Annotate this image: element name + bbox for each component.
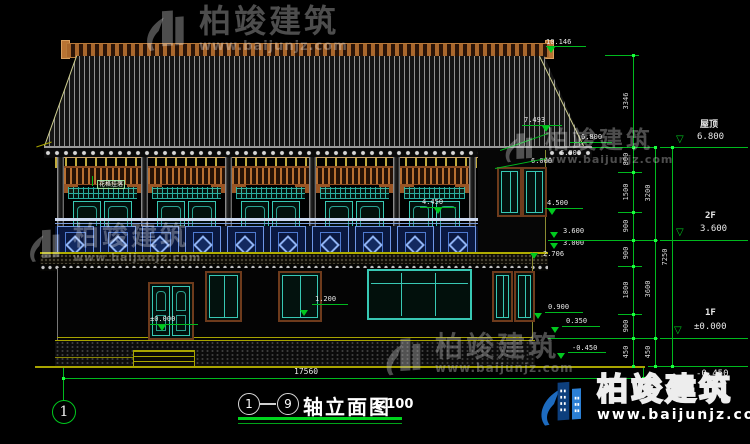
transom-bar	[371, 283, 468, 284]
marker-stem	[570, 142, 612, 143]
marker-triangle	[548, 209, 556, 215]
elevation-marker: 4.500	[547, 199, 568, 207]
elevation-marker: 10.146	[546, 38, 571, 46]
level-line	[660, 240, 748, 241]
dim-label: 17560	[294, 368, 318, 376]
detail-label: 花格挂落	[97, 180, 125, 189]
elevation-marker: 3.600	[563, 227, 584, 235]
dim-label: 450	[643, 330, 653, 374]
carved-bracket-band	[316, 166, 393, 185]
main-roof-tiles	[44, 56, 584, 146]
title-axis-start-bubble: 1	[238, 393, 260, 415]
level-triangle: ▽	[674, 326, 682, 336]
plinth-line	[55, 357, 135, 358]
cad-elevation-drawing: 花格挂落 10.146 7.493	[0, 0, 750, 444]
dim-tick	[654, 365, 657, 368]
drawing-scale: 1:100	[372, 397, 413, 412]
carved-bracket-band	[232, 166, 309, 185]
ground-line	[35, 366, 645, 368]
sill-band-line	[57, 337, 533, 338]
dim-tick	[632, 365, 635, 368]
brand-text: 柏竣建筑 www.baijunjz.com	[597, 374, 750, 423]
dim-label: 3200	[643, 171, 653, 215]
marker-triangle	[300, 310, 308, 316]
window-1f	[514, 271, 535, 322]
lattice-transom	[320, 187, 389, 199]
marker-triangle	[158, 325, 166, 331]
elevation-marker: -0.450	[572, 344, 597, 352]
dim-tick	[632, 265, 635, 268]
wall-edge	[57, 268, 58, 340]
detail-leader	[92, 176, 93, 186]
mullion	[435, 273, 436, 316]
dim-tick	[632, 171, 635, 174]
title-axis-end-bubble: 9	[277, 393, 299, 415]
marker-triangle	[551, 327, 559, 333]
level-value: 3.600	[700, 224, 727, 234]
door-leaf	[172, 286, 190, 336]
marker-triangle	[547, 47, 555, 53]
elevation-marker: 1.200	[315, 295, 336, 303]
marker-stem	[562, 326, 600, 327]
watermark-brand: 柏竣建筑	[199, 5, 348, 39]
extension-line	[643, 368, 644, 383]
grid-axis-bubble: 1	[52, 400, 76, 424]
carved-bracket-band	[148, 166, 225, 185]
window-1f	[492, 271, 513, 322]
carved-bracket-band	[400, 166, 469, 185]
marker-triangle	[542, 126, 550, 132]
level-value: ±0.000	[694, 322, 727, 332]
dim-tick	[671, 146, 674, 149]
marker-triangle	[530, 253, 538, 259]
dim-tick	[654, 337, 657, 340]
dim-tick	[632, 313, 635, 316]
dim-label: 3600	[643, 267, 653, 311]
extension-line	[548, 338, 658, 339]
level-triangle: ▽	[676, 228, 684, 238]
brand-url: www.baijunjz.com	[597, 407, 750, 423]
elevation-marker: ±0.000	[150, 315, 175, 323]
plinth	[55, 340, 535, 367]
level-line	[648, 366, 748, 367]
lattice-transom	[152, 187, 221, 199]
marker-stem	[312, 304, 348, 305]
dim-tick	[671, 365, 674, 368]
dimension-chain-outer	[672, 147, 673, 367]
extension-line	[548, 240, 658, 241]
dim-tick	[632, 54, 635, 57]
level-label: 1F	[705, 308, 716, 318]
lattice-transom	[236, 187, 305, 199]
dim-tick	[632, 146, 635, 149]
roof-ridge	[66, 43, 550, 58]
dim-tick	[632, 239, 635, 242]
dim-tick	[632, 337, 635, 340]
extension-line	[63, 368, 64, 401]
dim-tick	[654, 239, 657, 242]
marker-triangle	[557, 353, 565, 359]
window-2f	[522, 167, 547, 217]
marker-triangle	[550, 243, 558, 249]
elevation-marker: 6.800	[581, 133, 602, 141]
elevation-marker: 4.450	[422, 198, 443, 206]
title-underline-thin	[238, 423, 402, 424]
window-1f-wide	[367, 269, 472, 320]
window-1f	[205, 271, 242, 322]
dim-tick	[642, 377, 645, 380]
mullion	[401, 273, 402, 316]
grid-axis-number: 1	[60, 404, 69, 420]
dim-label: 450	[621, 330, 631, 374]
level-label: 2F	[705, 211, 716, 221]
marker-triangle	[434, 208, 442, 214]
railing-top-rail	[55, 218, 478, 221]
railing-rail-line	[55, 223, 478, 224]
level-value: 6.800	[697, 132, 724, 142]
dim-tick	[632, 211, 635, 214]
elevation-marker: 6.000	[560, 149, 581, 157]
marker-stem	[545, 312, 583, 313]
axis-start: 1	[245, 397, 253, 411]
dim-label: 3346	[621, 79, 631, 123]
axis-end: 9	[284, 397, 292, 411]
marker-stem	[568, 352, 606, 353]
level-line	[660, 338, 748, 339]
marker-triangle	[550, 232, 558, 238]
dim-tick	[62, 377, 65, 380]
elevation-marker: 7.493	[524, 116, 545, 124]
dim-tick	[654, 146, 657, 149]
bottom-dimension-line	[63, 378, 643, 379]
marker-triangle	[534, 313, 542, 319]
level-value: -0.450	[696, 369, 729, 379]
elevation-marker: 2.706	[543, 250, 564, 258]
dim-label: 7250	[660, 235, 670, 279]
title-underline-thick	[238, 417, 402, 420]
title-axis-dash	[260, 403, 276, 405]
brand-logo: 柏竣建筑 www.baijunjz.com	[536, 374, 750, 434]
elevation-marker: 0.350	[566, 317, 587, 325]
elevation-marker: 0.900	[548, 303, 569, 311]
brand-logo-icon	[536, 374, 590, 434]
level-label: 屋顶	[700, 120, 718, 130]
dimension-chain-middle	[655, 147, 656, 367]
level-triangle: ▽	[676, 135, 684, 145]
entrance-door	[148, 282, 194, 340]
window-2f	[497, 167, 522, 217]
